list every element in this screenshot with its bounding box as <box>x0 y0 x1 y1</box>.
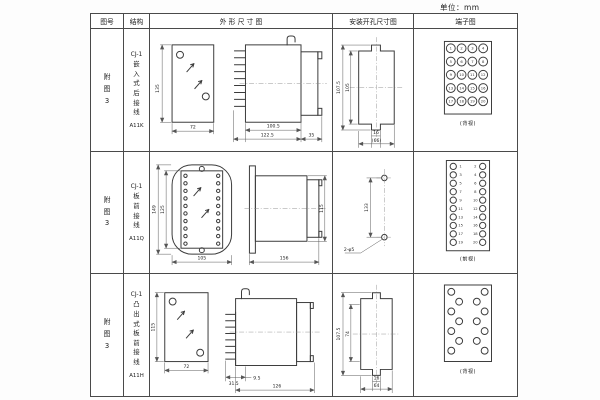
terminal-circle <box>450 172 456 178</box>
terminal-circle <box>184 182 187 185</box>
glass-mark-icon <box>194 188 209 218</box>
row2-structure-cell: CJ-1 板前接线 A11Q <box>124 152 150 274</box>
screw-hole <box>169 298 176 305</box>
model-label: A11H <box>129 373 144 379</box>
terminal-circle <box>473 298 480 305</box>
dim-front-height: 135 <box>155 84 161 93</box>
front-terminal-dots <box>184 174 220 245</box>
terminal-circle <box>455 317 462 324</box>
row3-figure-no-cell: 附图3 <box>91 274 124 396</box>
terminal-number: 14 <box>459 86 464 90</box>
header-mounting: 安装开孔尺寸图 <box>333 14 414 29</box>
series-label: CJ-1 <box>131 291 143 298</box>
view-label: (背视) <box>459 368 475 375</box>
row2-terminal-cell: 1234567891011121314151617181920 (前视) <box>414 152 517 274</box>
dim-side-length: 156 <box>280 256 289 262</box>
terminal-circle <box>450 189 456 195</box>
mounting-dimensions: 107.5 74 16 64 <box>336 292 392 392</box>
structure-label: 嵌入式后接线 <box>133 60 141 118</box>
outline-drawing-a11k: 135 72 100.5 122.5 <box>150 29 332 151</box>
terminal-circle <box>455 298 462 305</box>
unit-label: 单位：mm <box>440 2 480 13</box>
terminal-circle <box>481 347 488 354</box>
terminal-circle <box>217 242 220 245</box>
dim-front-outer-height: 149 <box>152 205 158 214</box>
row1-structure-cell: CJ-1 嵌入式后接线 A11K <box>124 29 150 152</box>
dim-inner-height: 74 <box>345 331 351 337</box>
terminal-number: 16 <box>480 86 485 90</box>
terminal-circle <box>184 219 187 222</box>
header-outline: 外 形 尺 寸 图 <box>150 14 333 29</box>
terminal-number: 6 <box>460 60 463 64</box>
terminal-diagram-a11k: 1234567891011121314151617181920 (背视) <box>415 29 517 151</box>
terminal-number: 1 <box>449 47 452 51</box>
dim-outer-height: 107.5 <box>336 327 342 340</box>
terminal-number: 12 <box>480 73 485 77</box>
terminal-circle <box>450 205 456 211</box>
terminal-circle <box>473 337 480 344</box>
cap-tab <box>319 180 322 186</box>
terminal-number: 16 <box>472 224 477 228</box>
outline-drawing-a11h: 115 72 31.5 9.5 126 <box>150 275 332 396</box>
mounting-drawing-a11h: 107.5 74 16 64 <box>333 275 413 396</box>
terminal-circle <box>217 174 220 177</box>
cap-tab <box>310 302 313 308</box>
terminal-number: 2 <box>474 165 476 169</box>
terminal-circle <box>479 239 485 245</box>
series-label: CJ-1 <box>131 183 143 190</box>
terminal-circle <box>450 163 456 169</box>
glass-mark-icon <box>178 311 194 338</box>
spec-table: 图号 结构 外 形 尺 寸 图 安装开孔尺寸图 端子图 附图3 CJ-1 嵌入式… <box>90 13 518 397</box>
cap-tab <box>310 355 313 361</box>
terminal-circle <box>450 214 456 220</box>
terminal-number: 20 <box>472 241 477 245</box>
model-label: A11K <box>129 123 143 129</box>
terminal-block-outline <box>444 284 491 361</box>
terminal-circle <box>479 214 485 220</box>
row1-outline-cell: 135 72 100.5 122.5 <box>150 29 333 152</box>
view-label: (前视) <box>459 256 475 263</box>
row3-outline-cell: 115 72 31.5 9.5 126 <box>150 274 333 396</box>
mounting-drawing-a11k: 107.5 105 16 (66) <box>333 29 413 151</box>
dim-body-length: 100.5 <box>267 124 280 130</box>
terminal-circle <box>217 212 220 215</box>
header-structure: 结构 <box>124 14 150 29</box>
row1-figure-no-cell: 附图3 <box>91 29 124 152</box>
terminal-circle <box>184 227 187 230</box>
terminal-circle <box>217 234 220 237</box>
terminal-number: 3 <box>471 47 474 51</box>
terminal-number: 2 <box>460 47 462 51</box>
terminal-circle <box>184 174 187 177</box>
dim-overall-width: 64 <box>374 383 380 389</box>
terminal-circle <box>481 327 488 334</box>
row1-mounting-cell: 107.5 105 16 (66) <box>333 29 414 152</box>
dim-hole-spacing: 133 <box>364 203 370 212</box>
row1-terminal-cell: 1234567891011121314151617181920 (背视) <box>414 29 517 152</box>
terminal-circle <box>450 180 456 186</box>
terminal-circle <box>479 222 485 228</box>
terminal-circle <box>479 163 485 169</box>
terminal-number: 14 <box>472 215 477 219</box>
terminal-number: 10 <box>459 73 464 77</box>
mounting-dimensions: 133 2-φ5 <box>344 178 383 253</box>
outline-drawing-a11q: 149 125 105 156 115 <box>150 152 332 273</box>
dim-pin-length: 9.5 <box>253 375 260 381</box>
terminal-circle <box>217 227 220 230</box>
terminal-slots: 1234567891011121314151617181920 <box>450 163 486 245</box>
terminal-circle <box>184 212 187 215</box>
terminal-circle <box>450 197 456 203</box>
terminal-circle <box>447 308 454 315</box>
terminal-number: 17 <box>448 100 453 104</box>
terminal-slots <box>447 288 487 354</box>
side-dimensions: 156 115 <box>249 176 326 265</box>
mounting-dimensions: 107.5 105 16 (66) <box>336 45 394 148</box>
screw-hole <box>197 349 204 356</box>
terminal-number: 11 <box>470 73 475 77</box>
terminal-number: 4 <box>474 173 477 177</box>
header-figure-no: 图号 <box>91 14 124 29</box>
terminal-number: 5 <box>449 60 452 64</box>
terminal-number: 11 <box>458 207 463 211</box>
screw-hole <box>177 51 184 58</box>
terminal-pins <box>226 312 236 365</box>
flange-tab <box>318 52 322 59</box>
terminal-number: 10 <box>472 198 477 202</box>
view-label: (背视) <box>459 120 475 127</box>
dim-rear-depth: 35 <box>309 133 315 139</box>
dim-front-inner-height: 125 <box>160 205 166 214</box>
terminal-number: 18 <box>472 232 477 236</box>
terminal-circle <box>447 288 454 295</box>
terminal-number: 7 <box>471 60 474 64</box>
structure-label: 凸出式板前接线 <box>133 300 141 367</box>
terminal-number: 13 <box>458 215 463 219</box>
wire-loop <box>241 288 249 298</box>
dim-front-width: 72 <box>190 125 196 131</box>
figure-no: 附图3 <box>103 72 112 108</box>
terminal-circle <box>184 197 187 200</box>
terminal-number: 4 <box>481 47 484 51</box>
terminal-slots: 1234567891011121314151617181920 <box>446 44 487 106</box>
terminal-circle <box>481 288 488 295</box>
terminal-number: 8 <box>474 190 477 194</box>
terminal-circle <box>479 231 485 237</box>
dim-notch-width: 16 <box>373 130 379 136</box>
terminal-circle <box>479 172 485 178</box>
terminal-number: 12 <box>472 207 477 211</box>
terminal-number: 9 <box>449 73 452 77</box>
terminal-number: 19 <box>458 241 463 245</box>
row3-structure-cell: CJ-1 凸出式板前接线 A11H <box>124 274 150 396</box>
row3-mounting-cell: 107.5 74 16 64 <box>333 274 414 396</box>
terminal-number: 8 <box>481 60 484 64</box>
terminal-circle <box>217 197 220 200</box>
figure-no: 附图3 <box>103 317 112 353</box>
series-label: CJ-1 <box>131 51 143 58</box>
dim-notch-width: 16 <box>374 375 380 381</box>
terminal-circle <box>217 189 220 192</box>
glass-mark-icon <box>187 64 202 89</box>
terminal-circle <box>450 231 456 237</box>
dim-side-height: 115 <box>319 204 325 213</box>
terminal-number: 7 <box>459 190 462 194</box>
terminal-circle <box>184 189 187 192</box>
dim-front-depth: 31.5 <box>229 381 239 387</box>
terminal-circle <box>479 180 485 186</box>
dim-overall-width: (66) <box>372 138 382 144</box>
terminal-circle <box>479 205 485 211</box>
terminal-circle <box>184 242 187 245</box>
terminal-number: 15 <box>470 86 475 90</box>
terminal-circle <box>217 204 220 207</box>
terminal-circle <box>447 347 454 354</box>
front-view-body <box>165 292 208 361</box>
terminal-number: 17 <box>458 232 463 236</box>
terminal-circle <box>450 222 456 228</box>
dim-outer-height: 107.5 <box>336 81 342 94</box>
terminal-circle <box>481 308 488 315</box>
dim-front-width: 72 <box>184 363 190 369</box>
figure-no: 附图3 <box>103 195 112 231</box>
terminal-diagram-a11h: (背视) <box>415 275 517 396</box>
terminal-number: 18 <box>459 100 464 104</box>
structure-label: 板前接线 <box>133 192 141 230</box>
terminal-number: 19 <box>470 100 475 104</box>
terminal-circle <box>455 337 462 344</box>
front-view-body <box>172 45 214 122</box>
terminal-circle <box>217 219 220 222</box>
terminal-number: 6 <box>474 182 477 186</box>
terminal-diagram-a11q: 1234567891011121314151617181920 (前视) <box>415 152 517 273</box>
row2-mounting-cell: 133 2-φ5 <box>333 152 414 274</box>
terminal-number: 13 <box>448 86 453 90</box>
terminal-pins <box>235 51 246 107</box>
terminal-circle <box>184 204 187 207</box>
cap-tab <box>319 231 322 237</box>
terminal-number: 5 <box>459 182 462 186</box>
dim-front-height: 115 <box>150 322 156 331</box>
header-terminal: 端子图 <box>414 14 517 29</box>
wire-loop <box>287 36 295 45</box>
terminal-circle <box>447 327 454 334</box>
terminal-circle <box>184 234 187 237</box>
row2-outline-cell: 149 125 105 156 115 <box>150 152 333 274</box>
dim-overall-length: 126 <box>273 383 282 389</box>
terminal-number: 15 <box>458 224 463 228</box>
document-page: 单位：mm 图号 结构 外 形 尺 寸 图 安装开孔尺寸图 端子图 附图3 CJ… <box>0 0 600 400</box>
terminal-number: 3 <box>459 173 462 177</box>
row2-figure-no-cell: 附图3 <box>91 152 124 274</box>
mounting-drawing-a11q: 133 2-φ5 <box>333 152 413 273</box>
terminal-circle <box>479 189 485 195</box>
dim-inner-height: 105 <box>345 83 351 92</box>
hole-callout: 2-φ5 <box>344 247 355 253</box>
screw-hole <box>202 93 209 100</box>
model-label: A11Q <box>129 236 144 242</box>
flange-tab <box>318 108 322 115</box>
terminal-circle <box>479 197 485 203</box>
terminal-number: 9 <box>459 198 462 202</box>
front-dimensions: 135 72 <box>155 45 214 134</box>
side-flange <box>249 166 255 253</box>
dim-front-width: 105 <box>197 256 206 262</box>
terminal-circle <box>217 182 220 185</box>
terminal-number: 1 <box>459 165 462 169</box>
dim-overall-length: 122.5 <box>261 133 274 139</box>
row3-terminal-cell: (背视) <box>414 274 517 396</box>
terminal-circle <box>450 239 456 245</box>
terminal-circle <box>473 317 480 324</box>
terminal-number: 20 <box>480 100 485 104</box>
